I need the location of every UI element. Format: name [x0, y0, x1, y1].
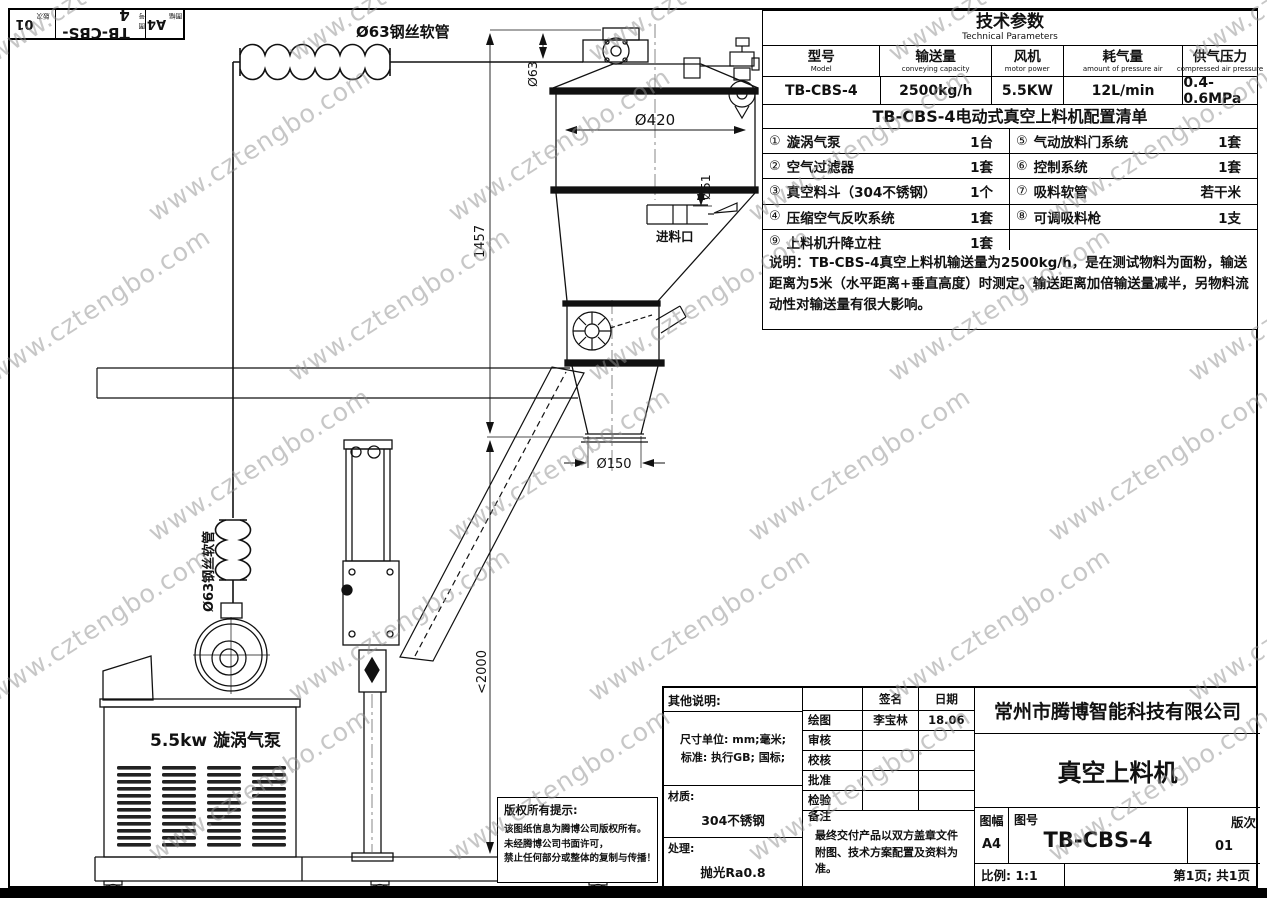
- material-cell: 材质: 304不锈钢: [664, 786, 802, 838]
- date-header: 日期: [918, 688, 974, 710]
- signature-table: 签名日期 绘图李宝林18.06 审核 校核 批准 检验 备注 最终交付产品以双方…: [802, 688, 975, 890]
- col-pressure: 供气压力: [1193, 50, 1247, 65]
- revision-cell: 版次01: [1188, 808, 1260, 863]
- tech-title-cn: 技术参数: [763, 11, 1257, 32]
- product-name: 真空上料机: [975, 734, 1260, 808]
- capacity-note: 说明：TB-CBS-4真空上料机输送量为2500kg/h，是在测试物料为面粉，输…: [762, 250, 1258, 330]
- page-cell: 第1页; 共1页: [1065, 864, 1260, 888]
- val-capacity: 2500kg/h: [880, 77, 992, 104]
- val-air: 12L/min: [1063, 77, 1183, 104]
- corner-number-label: 图号: [133, 12, 145, 32]
- sign-header: 签名: [862, 688, 917, 710]
- corner-sheet-value: A4: [147, 17, 166, 32]
- val-pressure: 0.4-0.6MPa: [1182, 77, 1257, 104]
- sheet-number-rev-row: 图幅A4 图号TB-CBS-4 版次01: [975, 808, 1260, 864]
- col-model: 型号: [808, 50, 835, 65]
- scale-page-row: 比例: 1:1 第1页; 共1页: [975, 864, 1260, 888]
- finish-cell: 处理: 抛光Ra0.8: [664, 838, 802, 890]
- config-row: ③真空料斗（304不锈钢）1个 ⑦吸料软管若干米: [763, 178, 1257, 203]
- other-notes-label: 其他说明:: [664, 688, 802, 712]
- tech-values-row: TB-CBS-4 2500kg/h 5.5KW 12L/min 0.4-0.6M…: [763, 76, 1257, 104]
- corner-title-block: 图幅 A4 图号 TB-CBS-4 版次 01: [8, 8, 185, 40]
- units-standard: 尺寸单位: mm;毫米; 标准: 执行GB; 国标;: [664, 712, 802, 786]
- corner-sheet-label: 图幅: [169, 12, 182, 22]
- config-list-title: TB-CBS-4电动式真空上料机配置清单: [762, 105, 1258, 129]
- corner-rev: 版次 01: [10, 10, 55, 38]
- tech-table-title: 技术参数 Technical Parameters: [763, 11, 1257, 45]
- company-name: 常州市腾博智能科技有限公司: [975, 688, 1260, 734]
- copyright-title: 版权所有提示:: [504, 802, 651, 818]
- tech-title-en: Technical Parameters: [763, 32, 1257, 42]
- val-model: TB-CBS-4: [763, 77, 880, 104]
- col-air: 耗气量: [1103, 50, 1144, 65]
- corner-rev-value: 01: [15, 17, 33, 32]
- val-motor: 5.5KW: [991, 77, 1063, 104]
- copyright-box: 版权所有提示: 该图纸信息为腾博公司版权所有。 未经腾博公司书面许可， 禁止任何…: [497, 797, 658, 883]
- corner-number: 图号 TB-CBS-4: [55, 10, 146, 38]
- col-capacity: 输送量: [915, 50, 956, 65]
- tech-header-row: 型号Model 输送量conveying capacity 风机motor po…: [763, 45, 1257, 76]
- scale-cell: 比例: 1:1: [975, 864, 1065, 888]
- remark-cell: 备注 最终交付产品以双方盖章文件附图、技术方案配置及资料为准。: [803, 805, 976, 890]
- col-motor: 风机: [1014, 50, 1041, 65]
- corner-rev-label: 版次: [37, 12, 50, 22]
- drawing-number-cell: 图号TB-CBS-4: [1009, 808, 1188, 863]
- corner-sheet: 图幅 A4: [146, 10, 183, 38]
- config-row: ④压缩空气反吹系统1套 ⑧可调吸料枪1支: [763, 204, 1257, 229]
- corner-number-value: TB-CBS-4: [56, 6, 130, 42]
- config-row: ①漩涡气泵1台 ⑤气动放料门系统1套: [763, 129, 1257, 153]
- title-block: 其他说明: 尺寸单位: mm;毫米; 标准: 执行GB; 国标; 材质: 304…: [662, 686, 1258, 888]
- sheet-size-cell: 图幅A4: [975, 808, 1009, 863]
- frame-bottom-bar: [0, 888, 1267, 898]
- config-row: ②空气过滤器1套 ⑥控制系统1套: [763, 153, 1257, 178]
- config-list-table: ①漩涡气泵1台 ⑤气动放料门系统1套 ②空气过滤器1套 ⑥控制系统1套 ③真空料…: [762, 129, 1258, 255]
- technical-parameters-table: 技术参数 Technical Parameters 型号Model 输送量con…: [762, 10, 1258, 105]
